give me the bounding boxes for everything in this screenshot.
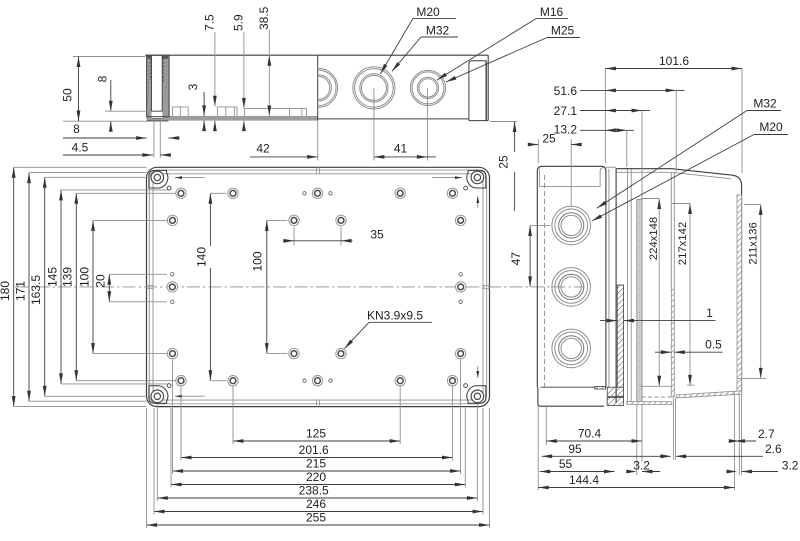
svg-text:13.2: 13.2 [554, 123, 578, 137]
svg-text:50: 50 [61, 88, 75, 102]
svg-text:100: 100 [77, 267, 91, 287]
svg-text:8: 8 [73, 122, 80, 136]
svg-text:4.5: 4.5 [72, 141, 89, 155]
svg-text:95: 95 [568, 442, 582, 456]
svg-text:42: 42 [256, 142, 270, 156]
svg-text:KN3.9x9.5: KN3.9x9.5 [367, 309, 423, 323]
svg-text:215: 215 [306, 457, 326, 471]
svg-text:35: 35 [370, 228, 384, 242]
svg-text:38.5: 38.5 [257, 6, 271, 30]
svg-text:217x142: 217x142 [677, 222, 689, 265]
svg-text:145: 145 [45, 267, 59, 287]
svg-text:20: 20 [94, 274, 108, 288]
svg-text:101.6: 101.6 [659, 54, 689, 68]
svg-text:1: 1 [706, 306, 713, 320]
svg-text:5.9: 5.9 [232, 14, 246, 31]
svg-text:55: 55 [559, 457, 573, 471]
svg-text:171: 171 [13, 281, 27, 301]
svg-text:180: 180 [0, 281, 12, 301]
svg-text:140: 140 [195, 247, 209, 267]
svg-text:M20: M20 [759, 120, 783, 134]
svg-text:220: 220 [306, 470, 326, 484]
svg-text:246: 246 [306, 497, 326, 511]
svg-text:25: 25 [497, 155, 511, 169]
svg-text:139: 139 [61, 267, 75, 287]
svg-text:51.6: 51.6 [554, 84, 578, 98]
svg-text:100: 100 [251, 251, 265, 271]
svg-text:238.5: 238.5 [299, 484, 329, 498]
svg-text:M32: M32 [426, 24, 450, 38]
svg-text:125: 125 [306, 427, 326, 441]
svg-text:255: 255 [306, 511, 326, 525]
svg-text:M25: M25 [551, 24, 575, 38]
svg-text:201.6: 201.6 [299, 443, 329, 457]
svg-text:0.5: 0.5 [705, 338, 722, 352]
svg-text:41: 41 [394, 142, 408, 156]
svg-text:3.2: 3.2 [633, 459, 650, 473]
svg-text:7.5: 7.5 [203, 14, 217, 31]
svg-text:2.6: 2.6 [765, 442, 782, 456]
svg-text:70.4: 70.4 [578, 427, 602, 441]
svg-text:224x148: 224x148 [648, 217, 660, 260]
svg-text:M16: M16 [540, 5, 564, 19]
svg-text:2.7: 2.7 [758, 427, 775, 441]
svg-text:3: 3 [186, 83, 200, 90]
svg-text:163.5: 163.5 [29, 275, 43, 305]
svg-text:8: 8 [96, 75, 110, 82]
svg-text:47: 47 [509, 252, 523, 266]
svg-text:M20: M20 [416, 5, 440, 19]
svg-text:144.4: 144.4 [569, 473, 599, 487]
svg-text:211x136: 211x136 [748, 222, 760, 265]
svg-text:M32: M32 [753, 97, 777, 111]
svg-text:3.2: 3.2 [782, 459, 799, 473]
svg-text:27.1: 27.1 [554, 104, 578, 118]
